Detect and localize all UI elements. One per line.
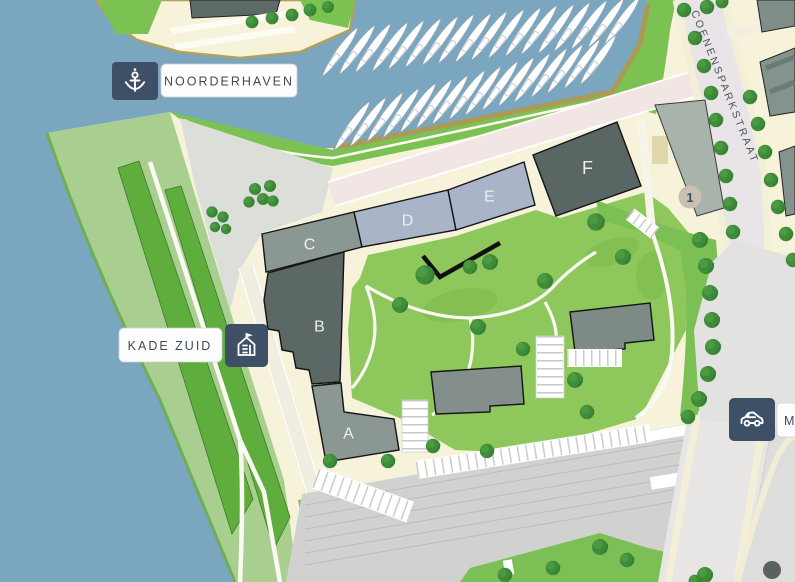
station-marker[interactable]: M (729, 398, 795, 441)
kade-zuid-marker[interactable]: KADE ZUID (119, 324, 268, 367)
dark-tree (763, 561, 781, 579)
noorderhaven-marker[interactable]: NOORDERHAVEN (112, 62, 297, 100)
unit-1-badge[interactable]: 1 (679, 186, 702, 209)
noorderhaven-label: NOORDERHAVEN (164, 75, 294, 89)
building-annex (652, 136, 668, 164)
building-c-label: C (304, 237, 317, 254)
map-canvas: A B C D E F (0, 0, 795, 582)
kade-zuid-label: KADE ZUID (128, 339, 213, 353)
station-label: M (784, 414, 795, 428)
site-map: A B C D E F (0, 0, 795, 582)
building-b-label: B (314, 319, 326, 336)
building-e-label: E (484, 189, 496, 206)
building-d-label: D (402, 213, 415, 230)
building-f-label: F (582, 158, 594, 178)
building-a-label: A (343, 426, 355, 443)
unit-1-badge-label: 1 (687, 191, 694, 205)
